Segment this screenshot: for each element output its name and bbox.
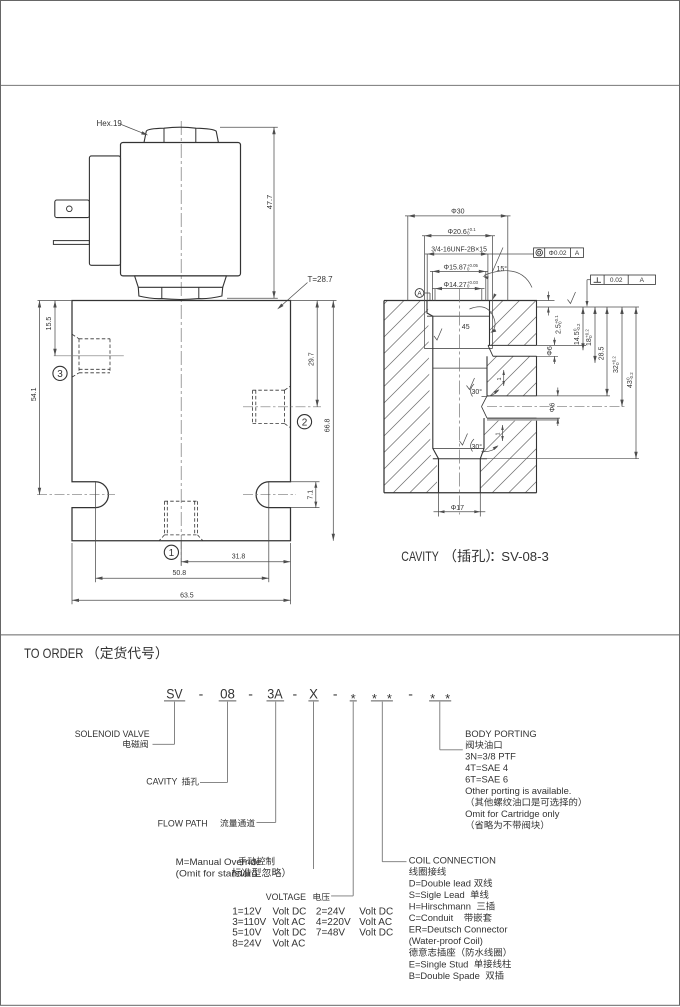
svg-text:14.5: 14.5 [574,331,581,345]
svg-text:TO ORDER: TO ORDER [24,645,83,661]
svg-text:5=10V: 5=10V [232,928,262,939]
svg-text:54.1: 54.1 [31,387,38,401]
svg-text:COIL CONNECTION: COIL CONNECTION [409,854,496,865]
svg-text:CAVITY: CAVITY [401,548,439,564]
svg-text:3A: 3A [267,685,283,701]
svg-text:ER=Deutsch Connector: ER=Deutsch Connector [409,924,508,935]
svg-text:Φ0.02: Φ0.02 [549,250,567,257]
svg-text:Φ14.27: Φ14.27 [444,282,467,289]
svg-text:A: A [640,277,645,284]
svg-text:SV-08-3: SV-08-3 [501,549,549,564]
svg-text:Volt DC: Volt DC [359,907,393,918]
svg-text:1: 1 [497,377,503,380]
svg-text:-: - [199,685,204,701]
svg-text:08: 08 [220,685,235,701]
svg-text:M=Manual Override: M=Manual Override [176,857,262,867]
svg-text:15°: 15° [497,265,508,273]
svg-text:BODY PORTING: BODY PORTING [465,728,537,739]
svg-text:Φ6: Φ6 [550,403,557,413]
svg-text:SOLENOID VALVE: SOLENOID VALVE [75,729,150,739]
svg-text:18: 18 [586,338,593,346]
svg-text:2: 2 [302,417,308,428]
svg-text:-0.2: -0.2 [576,323,581,331]
svg-text:4=220V: 4=220V [316,917,351,928]
svg-text:C=Conduit: C=Conduit [409,912,454,923]
svg-text:1=12V: 1=12V [232,907,262,918]
svg-text:Φ6: Φ6 [547,346,554,356]
svg-text:Other porting is available.: Other porting is available. [465,785,571,796]
svg-text:T=28.7: T=28.7 [308,275,334,284]
svg-text:47.7: 47.7 [265,195,274,210]
svg-text:1: 1 [496,432,502,435]
svg-text:Hex.19: Hex.19 [97,119,123,128]
svg-text:-0.2: -0.2 [629,372,634,380]
svg-text:Volt AC: Volt AC [273,938,306,949]
svg-text:4T=SAE 4: 4T=SAE 4 [465,762,508,773]
svg-text:0.02: 0.02 [610,277,623,284]
svg-text:Φ15.87: Φ15.87 [444,265,467,272]
svg-text:45: 45 [462,324,470,331]
svg-text:43: 43 [627,380,634,388]
svg-text:30°: 30° [472,443,483,451]
svg-text:SV: SV [166,685,183,701]
svg-text:*: * [430,691,435,706]
svg-text:3: 3 [57,369,63,380]
svg-text:31.8: 31.8 [232,554,246,561]
svg-text:2.5: 2.5 [556,324,563,334]
svg-text:7=48V: 7=48V [316,928,346,939]
svg-text:7.1: 7.1 [307,490,314,500]
svg-text:*: * [387,691,392,706]
svg-text:15.5: 15.5 [46,317,53,331]
svg-text:50.8: 50.8 [172,570,186,577]
svg-text:29.7: 29.7 [309,352,316,366]
svg-text:-: - [408,685,413,701]
svg-text:3N=3/8 PTF: 3N=3/8 PTF [465,751,516,762]
svg-text:8=24V: 8=24V [232,938,262,949]
svg-text:A: A [575,250,580,257]
svg-text:6T=SAE 6: 6T=SAE 6 [465,774,508,785]
svg-text:*: * [445,691,450,706]
svg-text:-: - [292,685,297,701]
svg-text:Φ30: Φ30 [451,208,464,215]
svg-text:CAVITY: CAVITY [146,777,177,787]
svg-text:A: A [417,291,422,298]
svg-text:H=Hirschmann: H=Hirschmann [409,901,471,912]
svg-text:Volt DC: Volt DC [273,907,307,918]
svg-text:32: 32 [613,365,620,373]
svg-text:Volt DC: Volt DC [359,928,393,939]
svg-text:-: - [248,685,253,701]
svg-text:Volt AC: Volt AC [359,917,392,928]
svg-text:66.8: 66.8 [325,418,332,432]
svg-text:*: * [372,691,377,706]
svg-text:S=Sigle Lead: S=Sigle Lead [409,889,465,900]
svg-text:Φ17: Φ17 [451,505,464,512]
svg-text:30°: 30° [472,388,483,396]
svg-text:3=110V: 3=110V [232,917,266,928]
svg-text:1: 1 [169,548,175,559]
svg-text:D=Double lead: D=Double lead [409,877,471,888]
svg-text:X: X [309,685,318,701]
svg-text:Φ20.6: Φ20.6 [448,229,467,236]
svg-text:28.5: 28.5 [598,346,605,360]
svg-text:2=24V: 2=24V [316,907,346,918]
svg-text:Omit for Cartridge only: Omit for Cartridge only [465,808,560,819]
svg-text:E=Single Stud: E=Single Stud [409,958,469,969]
svg-text:Volt DC: Volt DC [273,928,307,939]
svg-text:B=Double Spade: B=Double Spade [409,970,480,981]
svg-text:-: - [333,685,338,701]
svg-text:63.5: 63.5 [180,592,194,599]
svg-text:Volt AC: Volt AC [273,917,306,928]
svg-text:(Water-proof Coil): (Water-proof Coil) [409,935,483,946]
svg-text:3/4-16UNF-2B×15: 3/4-16UNF-2B×15 [431,247,487,254]
svg-text:FLOW PATH: FLOW PATH [158,818,208,828]
svg-text:VOLTAGE: VOLTAGE [266,892,306,902]
